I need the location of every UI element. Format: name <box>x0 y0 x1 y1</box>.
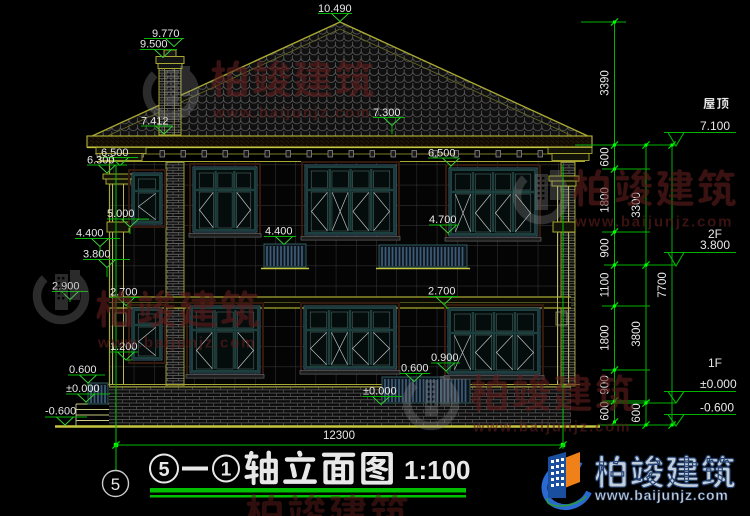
svg-text:4.700: 4.700 <box>429 214 457 226</box>
svg-text:5: 5 <box>111 475 120 494</box>
svg-text:±0.000: ±0.000 <box>66 383 100 395</box>
svg-text:±0.000: ±0.000 <box>700 377 737 391</box>
svg-text:7700: 7700 <box>657 272 669 298</box>
svg-text:0.900: 0.900 <box>431 352 459 364</box>
svg-text:4.400: 4.400 <box>76 228 104 240</box>
svg-text:www.baijunjz.com: www.baijunjz.com <box>212 105 371 122</box>
svg-text:0.600: 0.600 <box>69 364 97 376</box>
svg-text:3.800: 3.800 <box>700 238 730 252</box>
svg-text:3390: 3390 <box>600 70 612 96</box>
svg-text:1F: 1F <box>708 356 722 370</box>
svg-text:1800: 1800 <box>600 325 612 351</box>
svg-text:1:100: 1:100 <box>404 455 471 485</box>
svg-text:7.100: 7.100 <box>700 119 730 133</box>
svg-text:0.600: 0.600 <box>401 363 429 375</box>
svg-text:5: 5 <box>158 459 169 481</box>
svg-text:900: 900 <box>600 238 612 257</box>
svg-text:3.800: 3.800 <box>83 249 111 261</box>
svg-text:2.700: 2.700 <box>428 286 456 298</box>
svg-text:4.400: 4.400 <box>265 226 293 238</box>
svg-text:-0.600: -0.600 <box>700 401 734 415</box>
svg-text:±0.000: ±0.000 <box>363 386 397 398</box>
svg-text:1100: 1100 <box>600 273 612 298</box>
svg-text:www.baijunjz.com: www.baijunjz.com <box>574 214 733 231</box>
svg-text:www.baijunjz.com: www.baijunjz.com <box>97 335 256 352</box>
svg-text:www.baijunjz.com: www.baijunjz.com <box>472 419 631 436</box>
svg-text:3800: 3800 <box>631 321 643 347</box>
svg-text:600: 600 <box>600 147 612 166</box>
svg-text:12300: 12300 <box>323 430 355 442</box>
svg-text:www.baijunjz.com: www.baijunjz.com <box>594 487 729 503</box>
svg-text:9.500: 9.500 <box>140 39 168 51</box>
svg-text:5.000: 5.000 <box>107 208 135 220</box>
svg-text:-0.600: -0.600 <box>45 406 76 418</box>
svg-text:1: 1 <box>221 460 232 481</box>
